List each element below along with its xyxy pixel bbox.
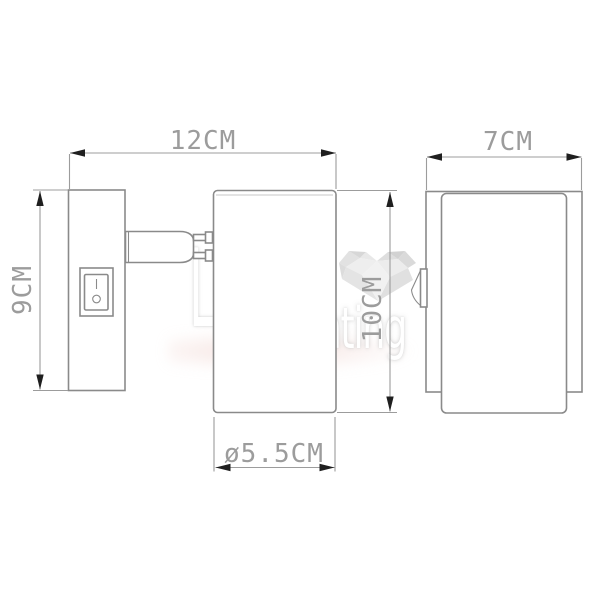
diagram-canvas: LOVE lighting: [0, 0, 600, 600]
dimension-10cm: 10CM: [337, 191, 397, 413]
dimension-label-total-projection: 12CM: [170, 126, 237, 156]
arrowhead-right: [321, 149, 336, 156]
dimension-12cm: 12CM: [70, 126, 337, 189]
connector-pin-bottom: [194, 253, 207, 259]
arrowhead-right: [567, 153, 582, 160]
dimension-7cm: 7CM: [427, 127, 582, 190]
connector-pin-top-cap: [206, 232, 213, 243]
dimension-label-plate-height: 9CM: [8, 265, 38, 315]
side-cylinder-body: [214, 191, 337, 413]
arrowhead-top: [36, 191, 43, 206]
dimension-9cm: 9CM: [8, 190, 68, 391]
dimension-5p5cm: ø5.5CM: [214, 417, 335, 472]
dimension-label-plate-width: 7CM: [483, 127, 533, 157]
arrowhead-top: [386, 192, 393, 207]
connector-pin-top: [194, 235, 207, 241]
connector-pin-bottom-cap: [206, 250, 213, 261]
dimension-drawing: 12CM 9CM 10CM 7CM: [0, 0, 600, 600]
arrowhead-bottom: [36, 375, 43, 390]
side-view: [69, 190, 337, 413]
arrowhead-left: [427, 153, 442, 160]
arrowhead-bottom: [386, 397, 393, 412]
front-switch-lever-base: [421, 269, 428, 307]
mount-arm: [126, 232, 194, 263]
arrowhead-left: [70, 149, 85, 156]
front-switch-lever-arc: [412, 271, 421, 306]
front-view: [412, 192, 583, 414]
dimension-label-body-height: 10CM: [358, 276, 388, 343]
dimension-label-body-diameter: ø5.5CM: [224, 439, 324, 469]
front-cylinder-body: [442, 194, 567, 414]
